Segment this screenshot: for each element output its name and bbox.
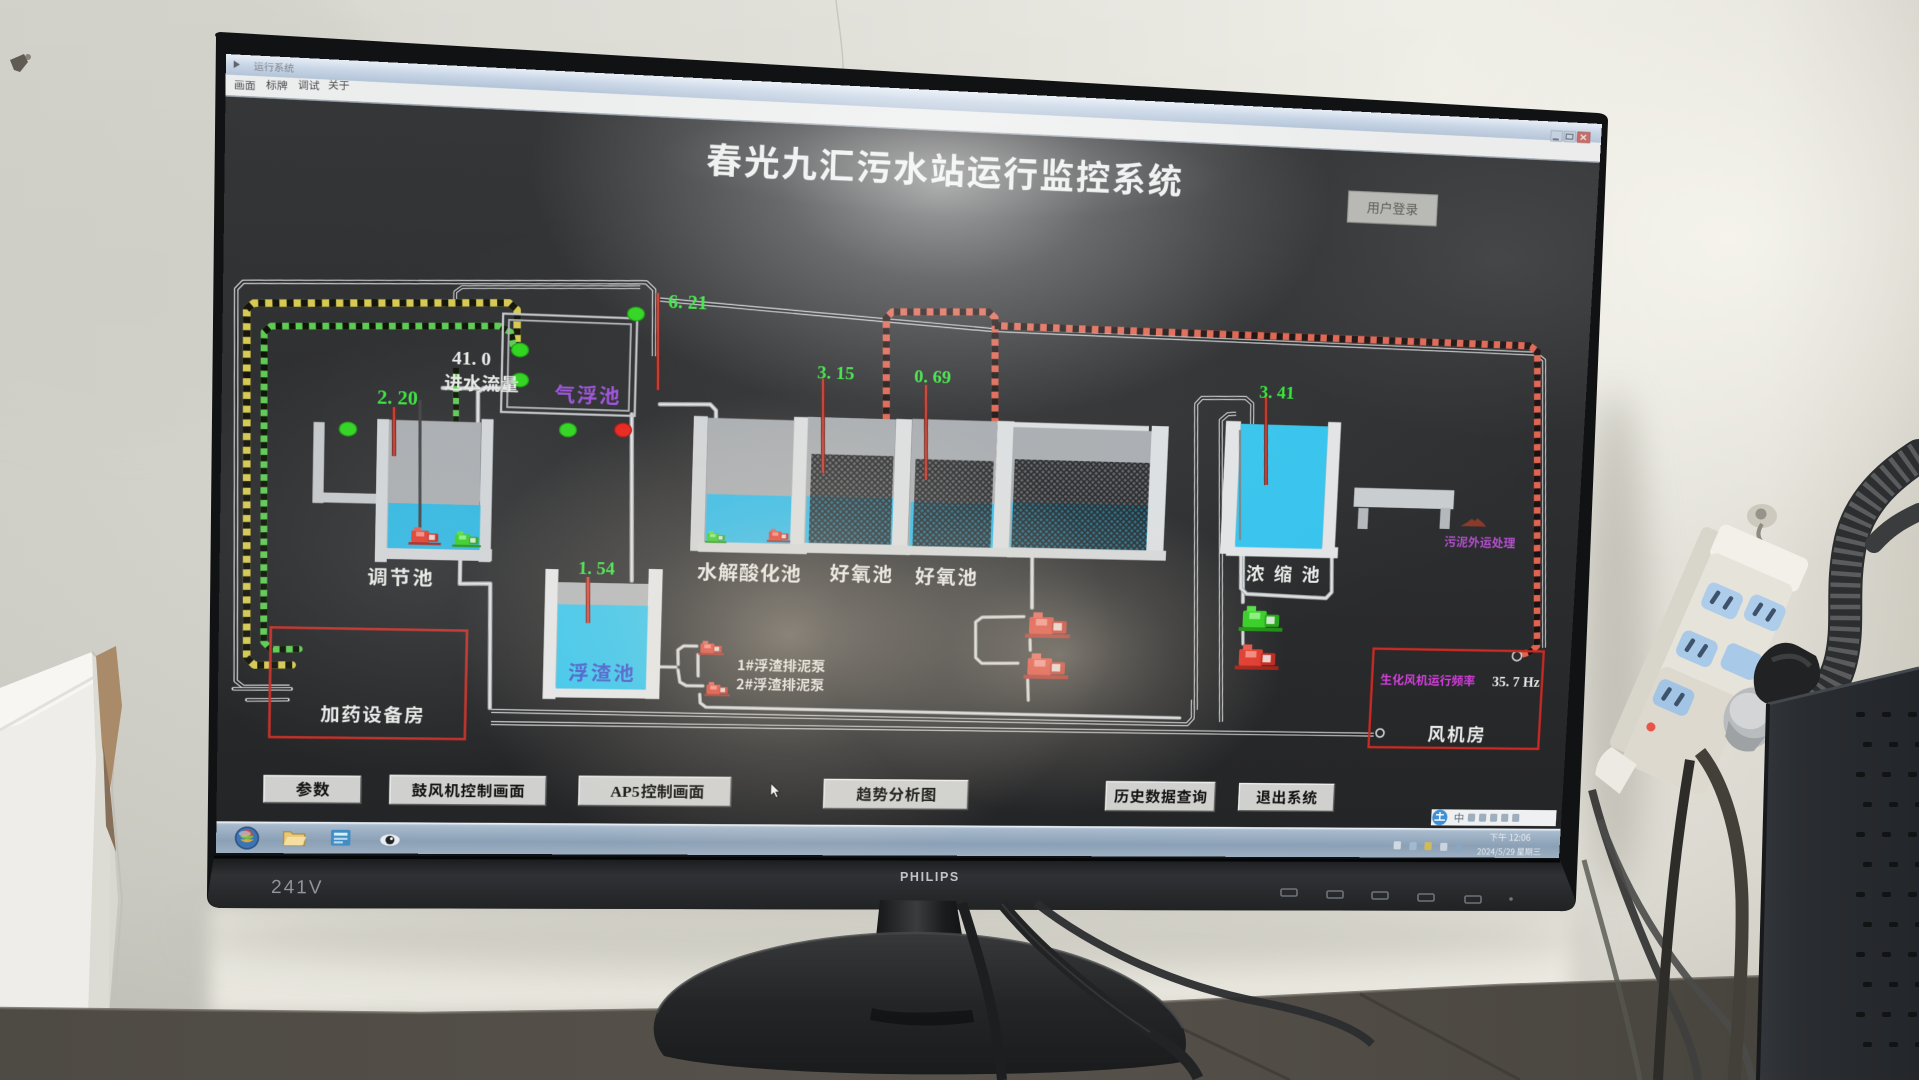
svg-text:PHILIPS: PHILIPS — [900, 870, 960, 884]
svg-text:241V: 241V — [271, 877, 324, 899]
